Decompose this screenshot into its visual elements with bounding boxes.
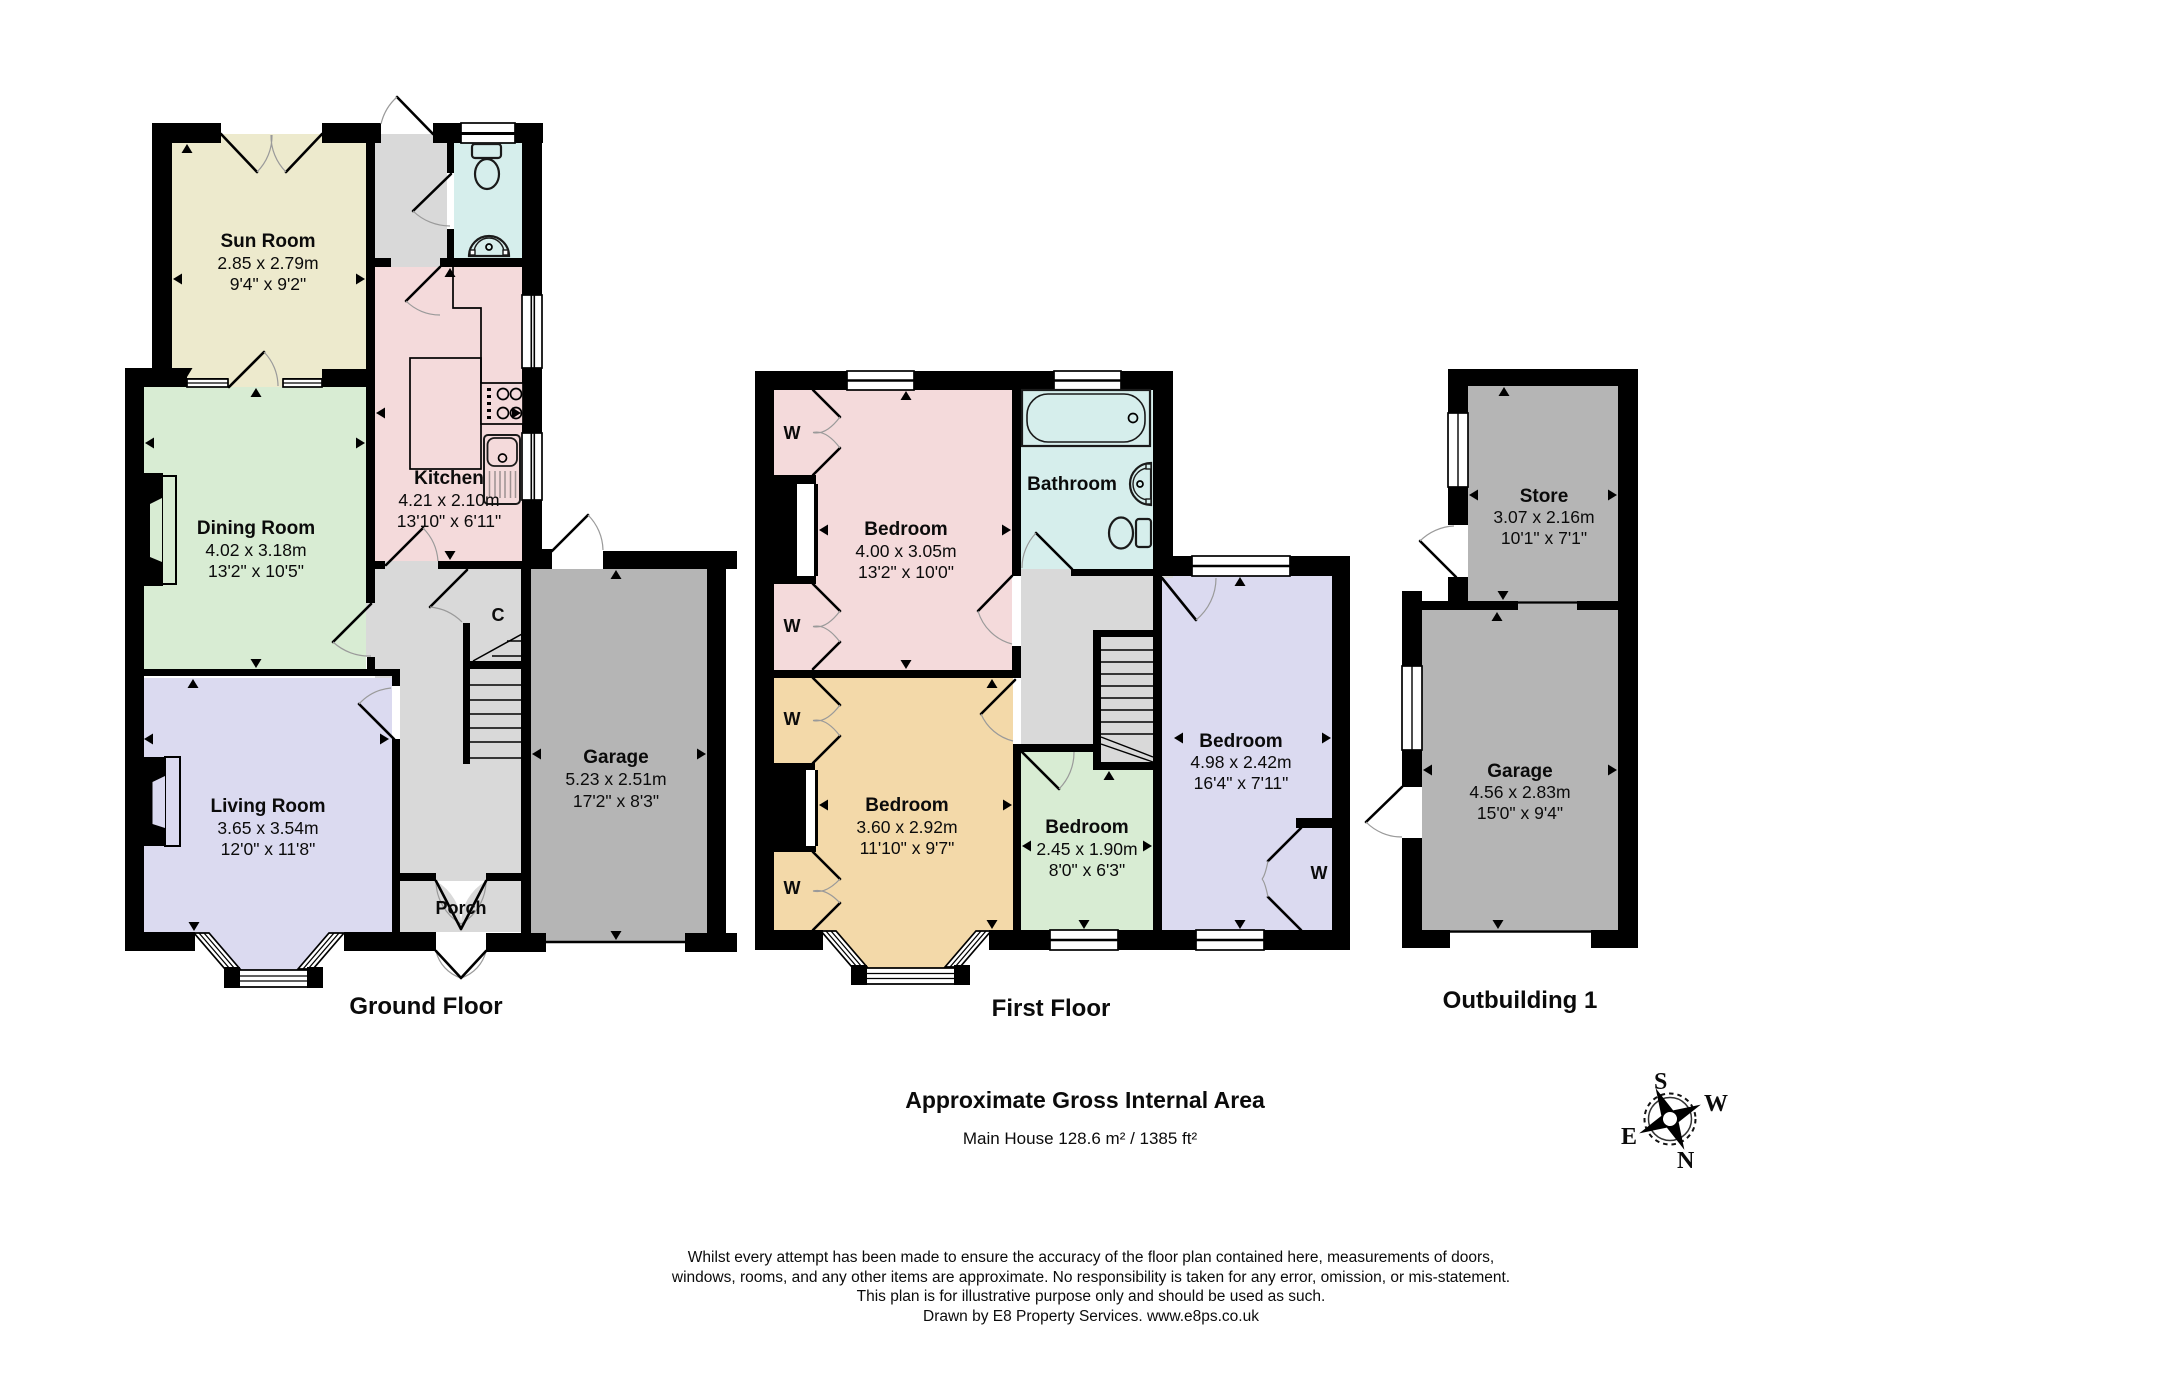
svg-text:4.02 x 3.18m: 4.02 x 3.18m	[205, 540, 306, 560]
svg-text:windows, rooms, and any other: windows, rooms, and any other items are …	[671, 1269, 1510, 1286]
svg-text:17'2" x 8'3": 17'2" x 8'3"	[573, 791, 659, 811]
svg-text:4.00 x 3.05m: 4.00 x 3.05m	[855, 541, 956, 561]
svg-text:E: E	[1621, 1124, 1637, 1150]
svg-text:13'2" x 10'0": 13'2" x 10'0"	[858, 562, 954, 582]
svg-text:15'0" x 9'4": 15'0" x 9'4"	[1477, 803, 1563, 823]
svg-text:Bedroom: Bedroom	[864, 519, 947, 540]
svg-text:11'10" x 9'7": 11'10" x 9'7"	[860, 838, 955, 858]
svg-text:3.07 x 2.16m: 3.07 x 2.16m	[1493, 507, 1594, 527]
svg-text:4.98 x 2.42m: 4.98 x 2.42m	[1190, 752, 1291, 772]
svg-text:S: S	[1654, 1069, 1667, 1095]
svg-text:N: N	[1677, 1148, 1695, 1174]
svg-text:8'0" x 6'3": 8'0" x 6'3"	[1049, 860, 1126, 880]
svg-text:Kitchen: Kitchen	[414, 468, 484, 489]
svg-text:10'1" x 7'1": 10'1" x 7'1"	[1501, 528, 1587, 548]
svg-text:W: W	[1311, 863, 1328, 883]
svg-text:4.56 x 2.83m: 4.56 x 2.83m	[1469, 782, 1570, 802]
svg-text:3.65 x 3.54m: 3.65 x 3.54m	[217, 818, 318, 838]
svg-text:16'4" x 7'11": 16'4" x 7'11"	[1194, 773, 1289, 793]
svg-text:Garage: Garage	[1487, 761, 1552, 782]
svg-text:Dining Room: Dining Room	[197, 518, 315, 539]
svg-text:13'10" x 6'11": 13'10" x 6'11"	[397, 511, 501, 531]
svg-text:W: W	[1704, 1091, 1728, 1117]
svg-text:9'4" x 9'2": 9'4" x 9'2"	[230, 274, 307, 294]
svg-text:W: W	[784, 878, 801, 898]
svg-text:Living Room: Living Room	[210, 796, 325, 817]
svg-text:Bedroom: Bedroom	[1199, 731, 1282, 752]
svg-text:Store: Store	[1520, 486, 1569, 507]
svg-text:2.45 x 1.90m: 2.45 x 1.90m	[1036, 839, 1137, 859]
svg-text:Outbuilding 1: Outbuilding 1	[1443, 987, 1598, 1014]
svg-text:Sun Room: Sun Room	[221, 231, 316, 252]
svg-text:Bedroom: Bedroom	[1045, 817, 1128, 838]
svg-text:W: W	[784, 616, 801, 636]
svg-text:C: C	[492, 605, 505, 625]
svg-text:Whilst every attempt has been: Whilst every attempt has been made to en…	[688, 1249, 1494, 1266]
svg-text:Main House 128.6 m² / 1385 ft²: Main House 128.6 m² / 1385 ft²	[963, 1129, 1198, 1148]
svg-text:W: W	[784, 709, 801, 729]
svg-text:4.21 x 2.10m: 4.21 x 2.10m	[398, 490, 499, 510]
svg-text:Porch: Porch	[435, 898, 486, 918]
svg-text:3.60 x 2.92m: 3.60 x 2.92m	[856, 817, 957, 837]
svg-text:5.23 x 2.51m: 5.23 x 2.51m	[565, 769, 666, 789]
svg-text:Garage: Garage	[583, 747, 648, 768]
svg-text:W: W	[784, 423, 801, 443]
svg-text:Bedroom: Bedroom	[865, 795, 948, 816]
svg-text:This plan is for illustrative: This plan is for illustrative purpose on…	[857, 1288, 1326, 1305]
svg-text:Drawn by E8 Property Services.: Drawn by E8 Property Services. www.e8ps.…	[923, 1308, 1259, 1325]
svg-text:2.85 x 2.79m: 2.85 x 2.79m	[217, 253, 318, 273]
svg-text:12'0" x 11'8": 12'0" x 11'8"	[221, 839, 316, 859]
svg-text:First Floor: First Floor	[992, 995, 1111, 1022]
svg-text:Bathroom: Bathroom	[1027, 474, 1117, 495]
svg-text:13'2" x 10'5": 13'2" x 10'5"	[208, 561, 304, 581]
svg-text:Approximate Gross Internal Are: Approximate Gross Internal Area	[905, 1087, 1265, 1113]
svg-text:Ground Floor: Ground Floor	[349, 993, 502, 1020]
